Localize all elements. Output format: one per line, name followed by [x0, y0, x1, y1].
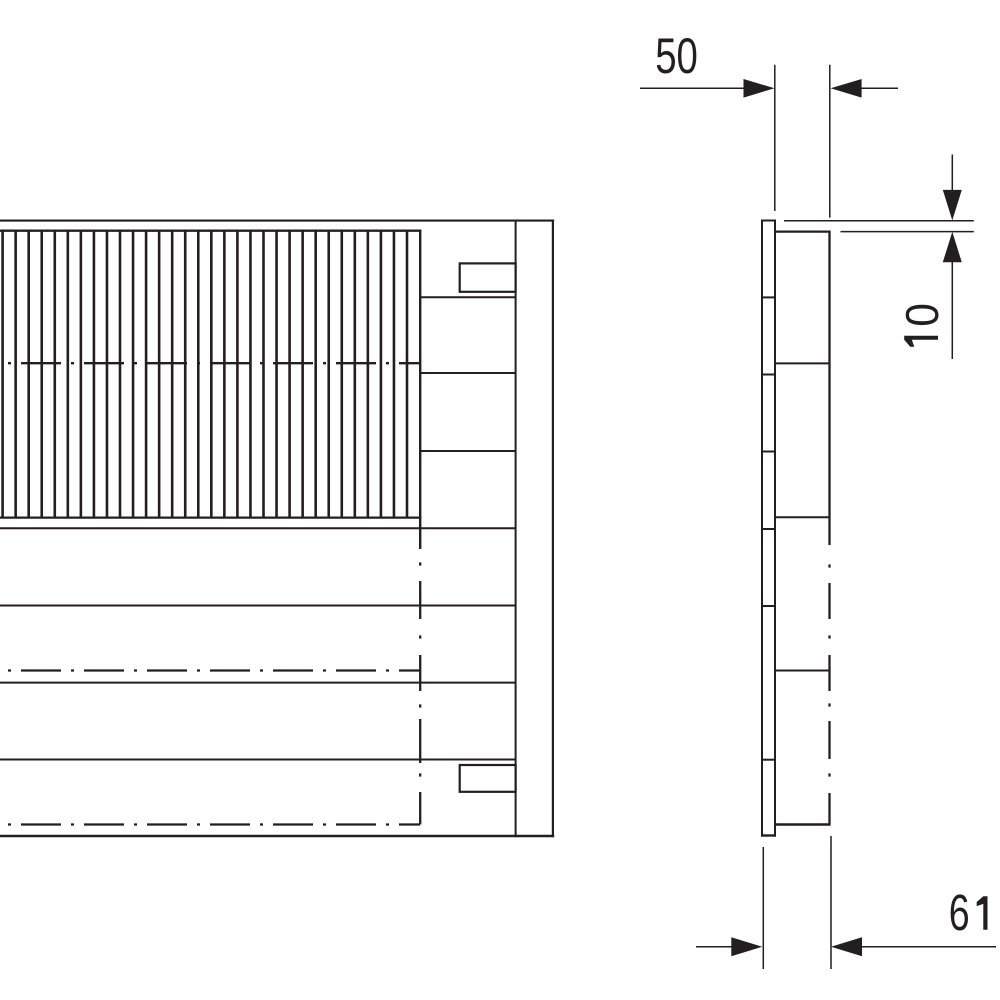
svg-text:6: 6	[949, 884, 970, 941]
svg-text:0: 0	[897, 303, 948, 327]
svg-text:50: 50	[655, 29, 698, 84]
